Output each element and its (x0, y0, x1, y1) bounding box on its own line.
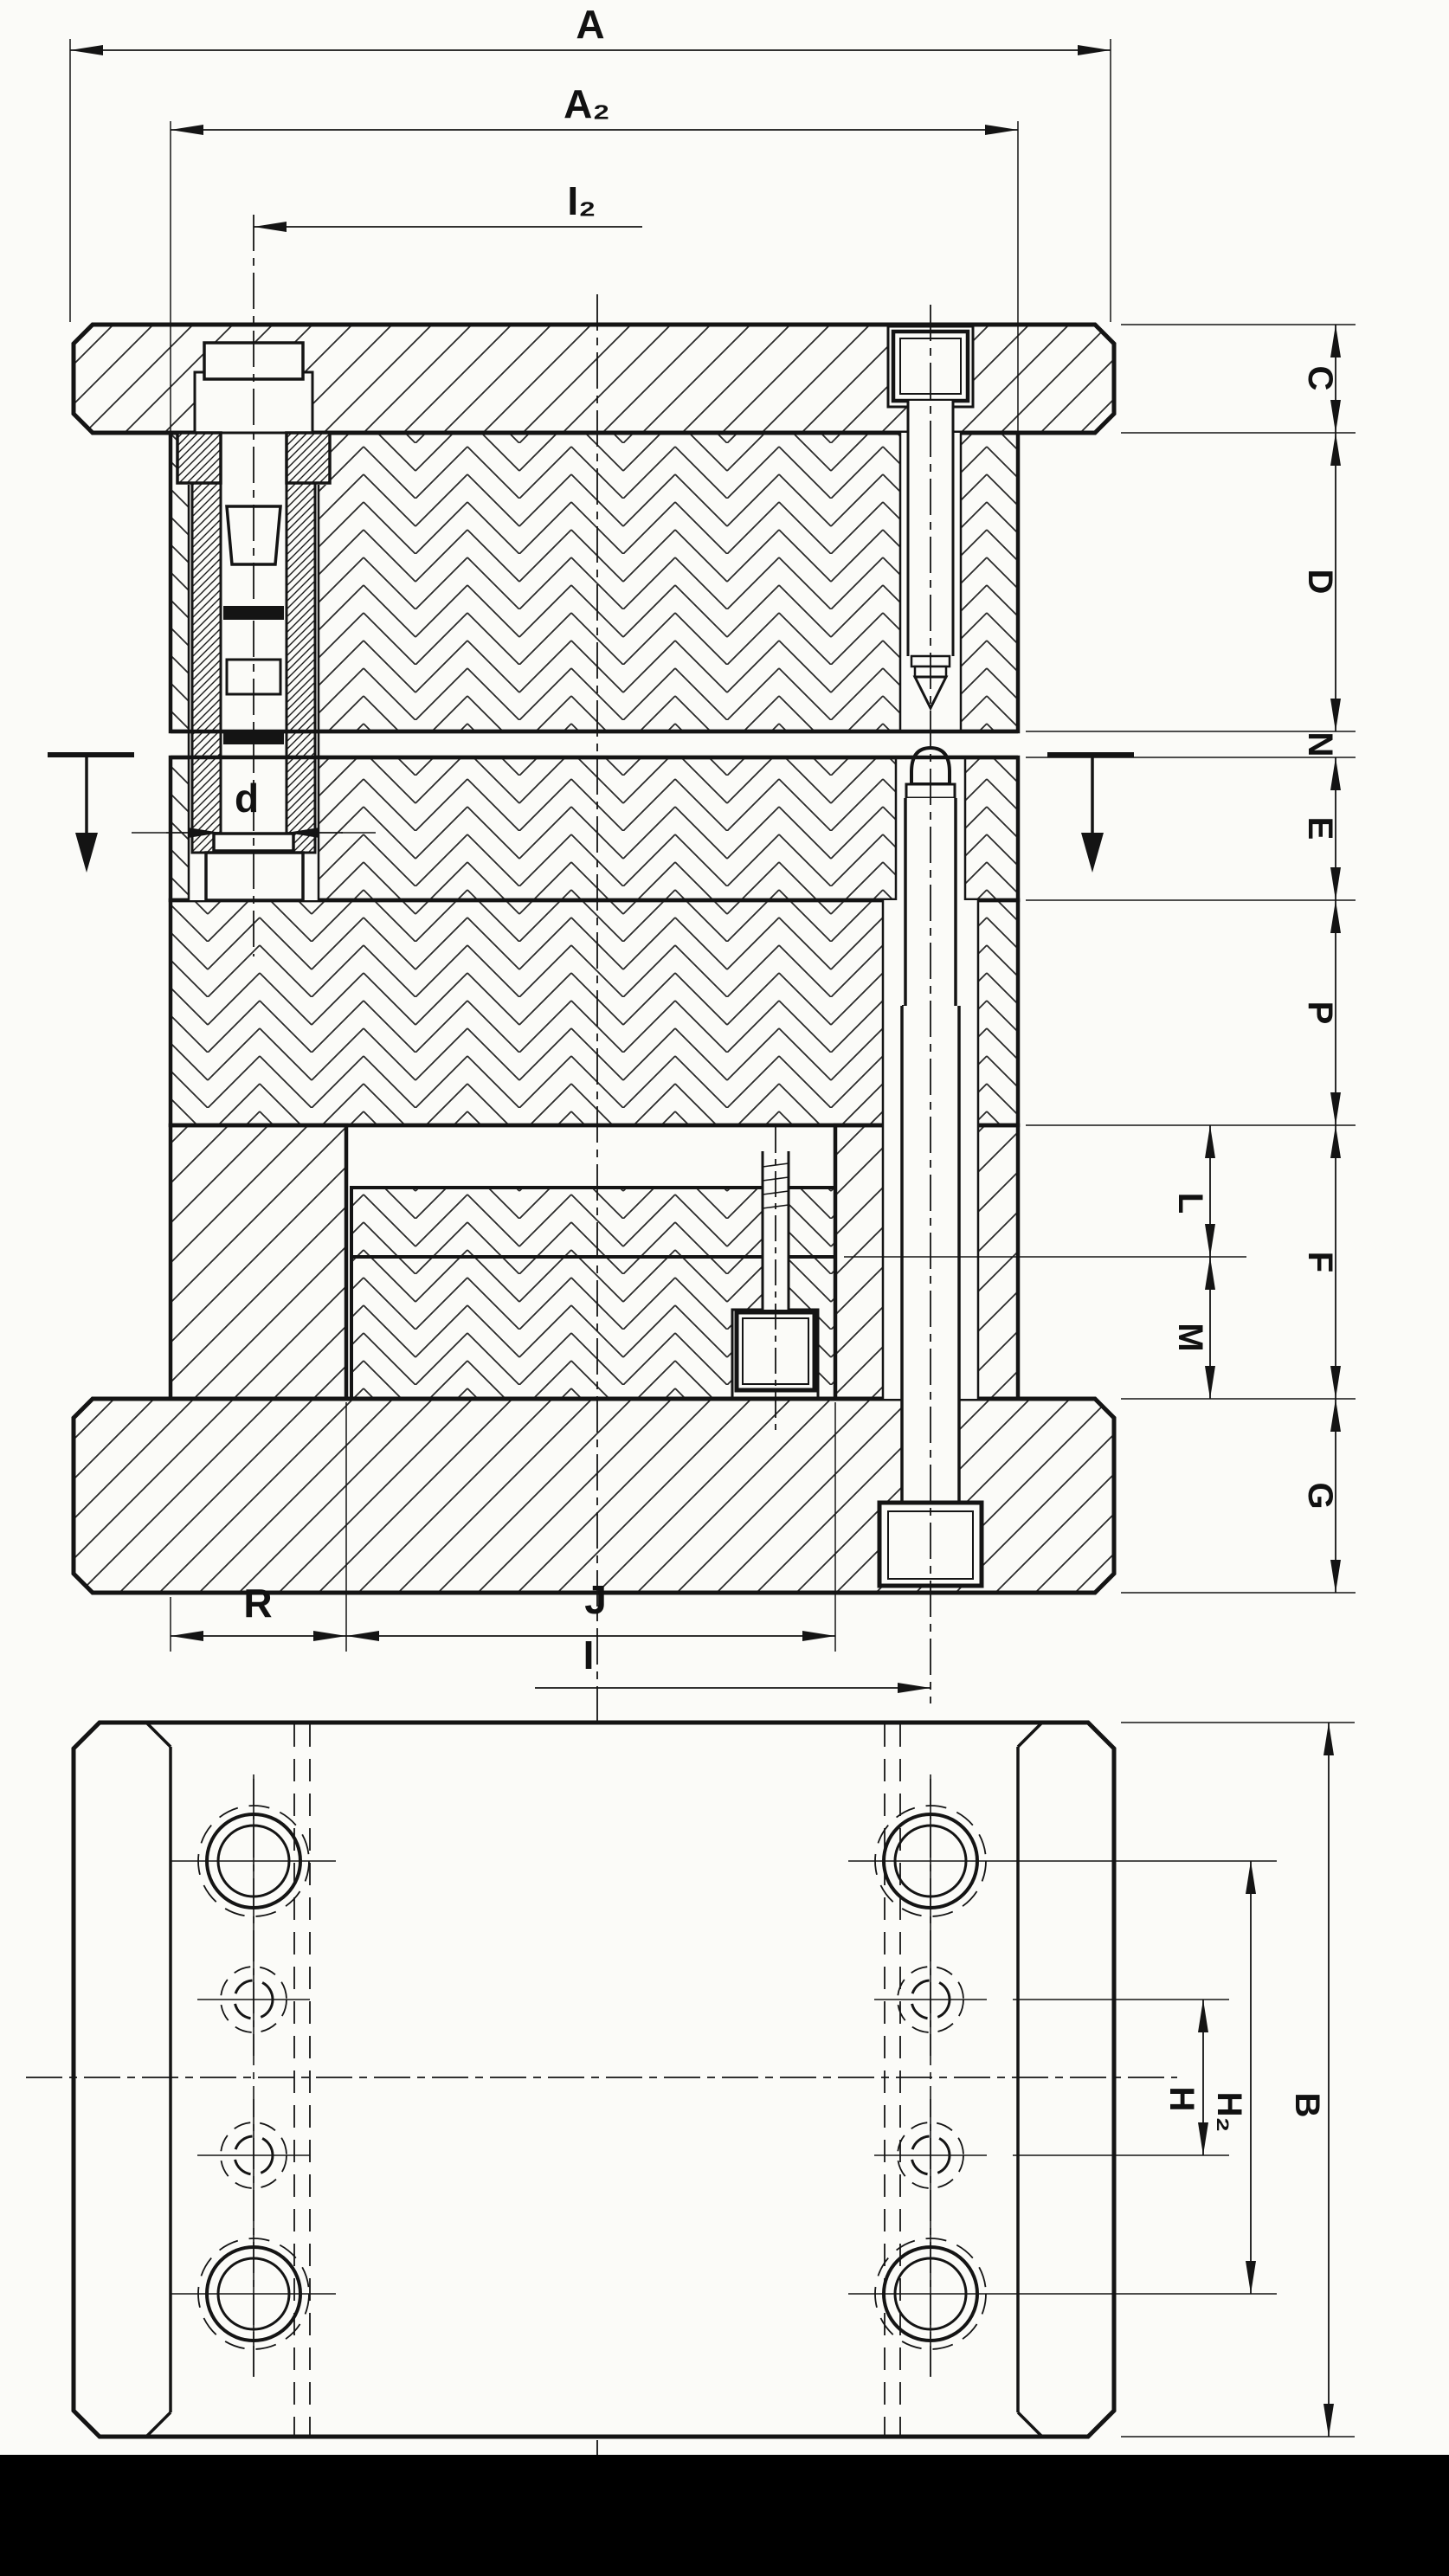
section-arrow-right (1047, 755, 1134, 873)
label-I2: I₂ (567, 178, 596, 223)
label-R: R (243, 1581, 272, 1626)
label-D: D (1301, 570, 1339, 595)
label-d: d (235, 776, 259, 821)
label-A: A (576, 2, 604, 47)
section-arrow-left (48, 755, 134, 873)
scanned-drawing-page: A A₂ I₂ d R J I C D N E P F G L M H H₂ B (0, 0, 1449, 2576)
label-H: H (1162, 2087, 1201, 2112)
label-I: I (583, 1633, 595, 1678)
label-A2: A₂ (563, 81, 610, 126)
label-E: E (1301, 817, 1339, 840)
label-F: F (1301, 1252, 1339, 1272)
label-G: G (1301, 1482, 1339, 1509)
label-H2: H₂ (1210, 2092, 1248, 2133)
label-B: B (1288, 2093, 1326, 2118)
scan-black-bar (0, 2455, 1449, 2576)
plan-view (26, 1723, 1355, 2437)
label-P: P (1301, 1001, 1339, 1025)
label-C: C (1301, 366, 1339, 391)
die-set-drawing: A A₂ I₂ d R J I C D N E P F G L M H H₂ B (0, 0, 1449, 2576)
label-N: N (1301, 732, 1339, 757)
label-J: J (584, 1577, 607, 1622)
sectional-elevation-view (48, 325, 1134, 1593)
label-M: M (1171, 1323, 1209, 1351)
label-L: L (1171, 1193, 1209, 1214)
